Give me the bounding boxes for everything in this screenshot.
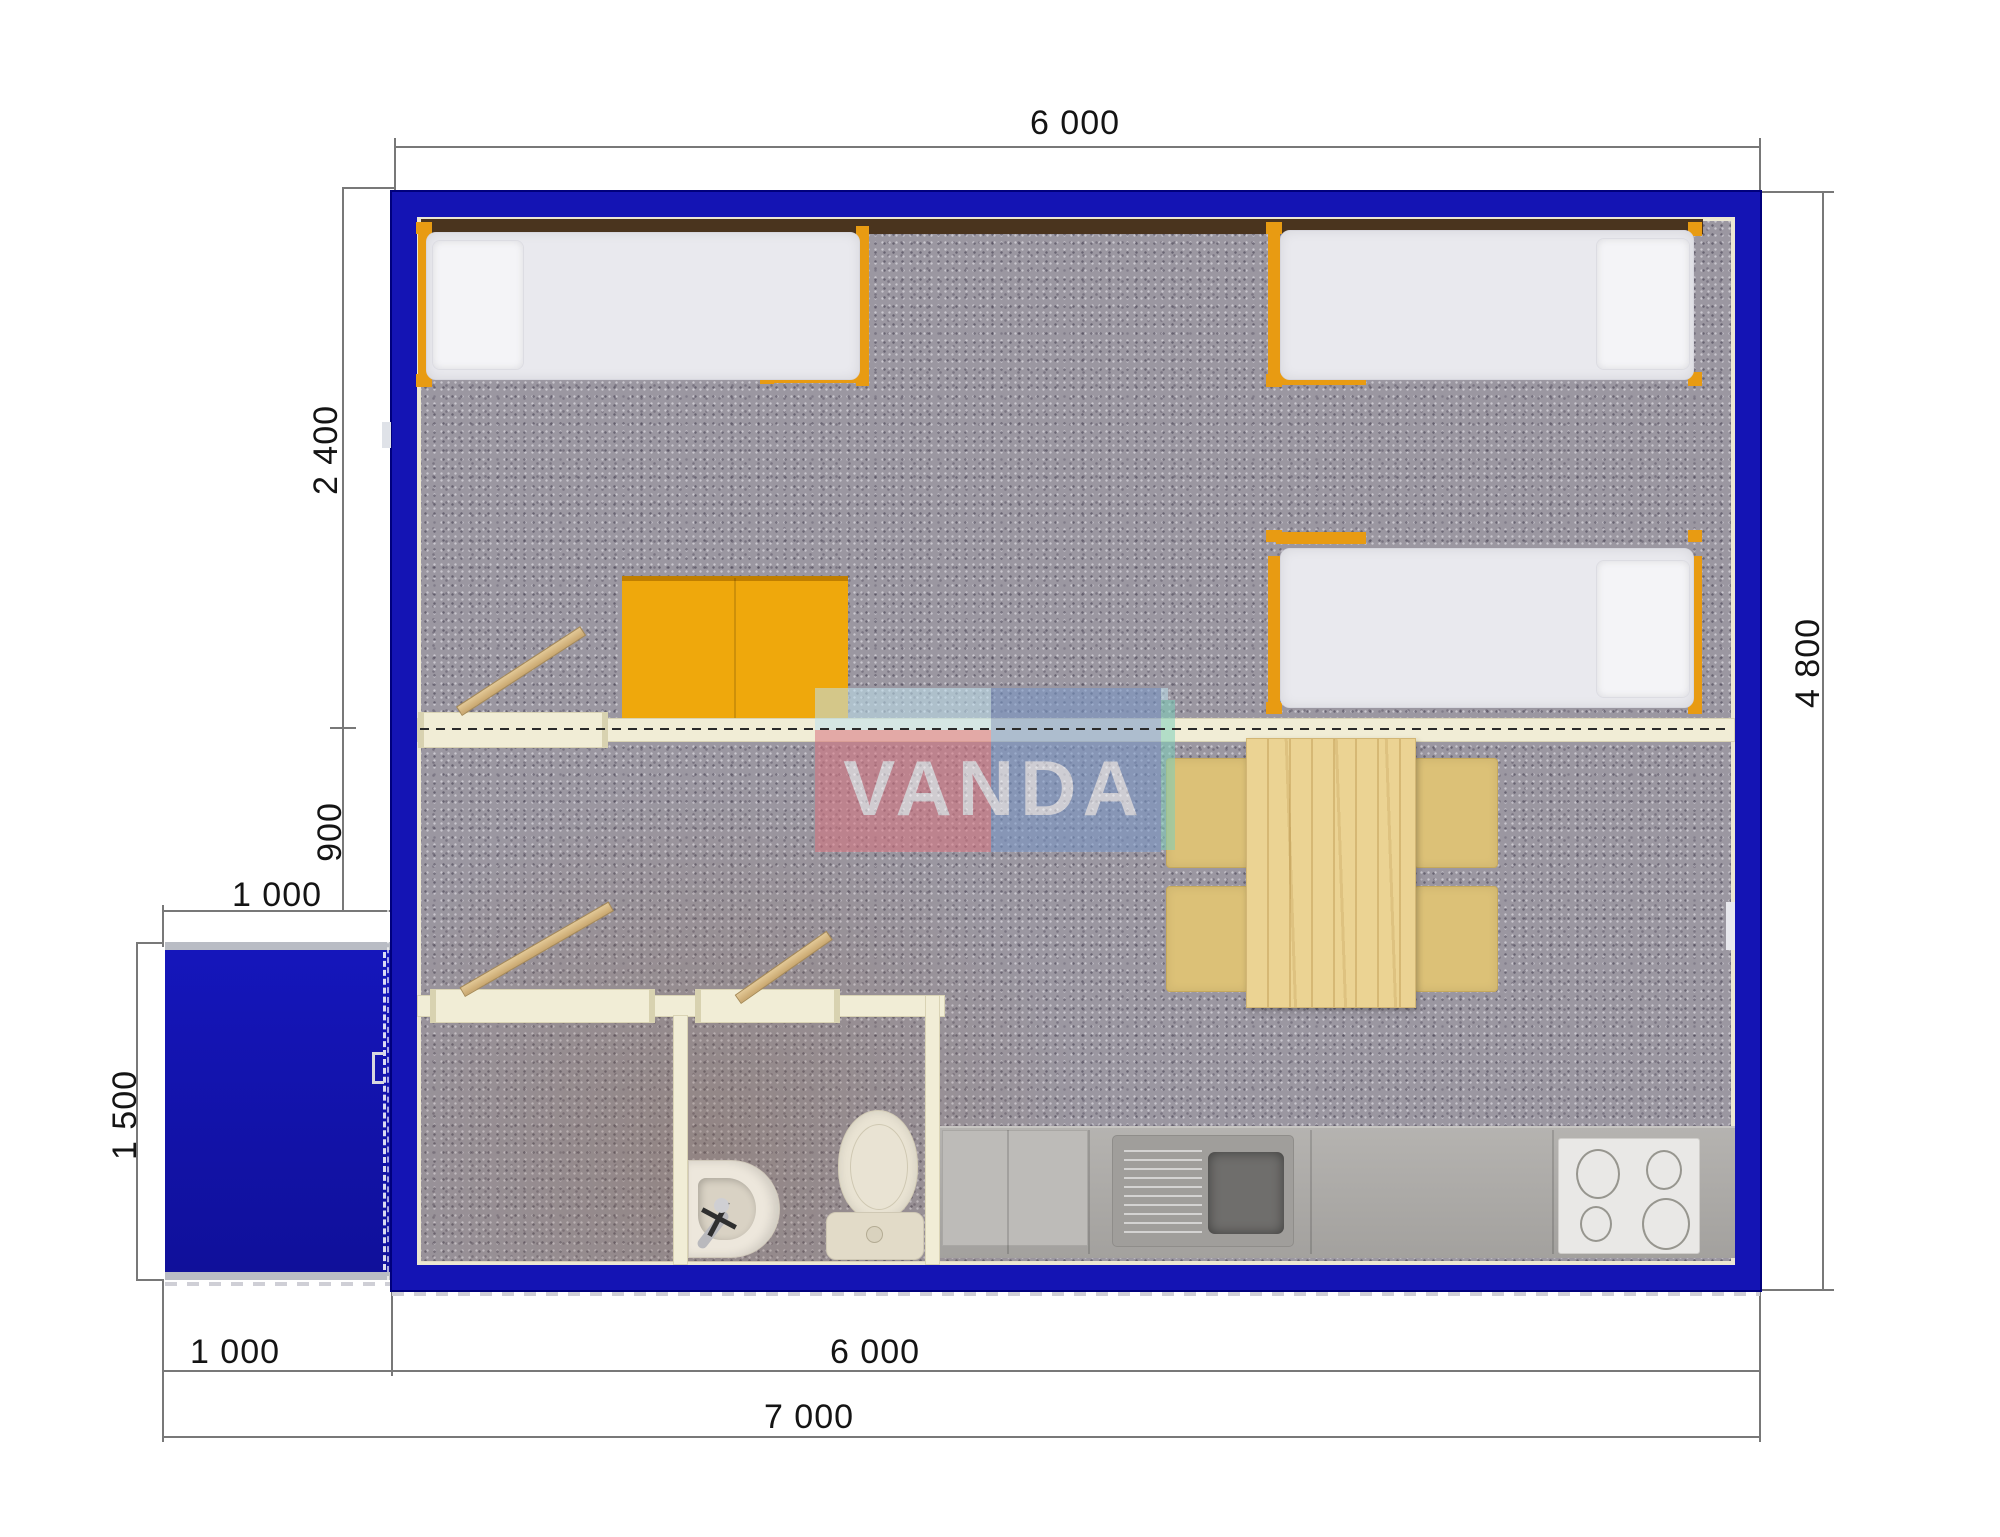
- porch-bottom-step: [165, 1272, 390, 1280]
- sink-basin: [1208, 1152, 1284, 1234]
- dim-witness: [394, 138, 396, 192]
- bed-frame-corner: [1688, 530, 1702, 542]
- counter-seam: [1007, 1130, 1009, 1254]
- dim-witness: [1760, 1289, 1834, 1291]
- partition-dashed-centerline: [420, 728, 1732, 730]
- chair: [1414, 758, 1498, 868]
- burner-icon: [1642, 1198, 1690, 1250]
- wc-right-wall: [925, 995, 940, 1265]
- burner-icon: [1576, 1149, 1620, 1199]
- dim-witness: [1760, 191, 1834, 193]
- dim-line: [395, 146, 1760, 148]
- dim-witness: [342, 187, 394, 189]
- dim-witness: [136, 942, 164, 944]
- dim-witness: [391, 1290, 393, 1376]
- porch-top-step: [165, 942, 390, 950]
- toilet-lid-inner-line: [850, 1124, 908, 1210]
- right-wall-window: [1726, 902, 1735, 950]
- logo-text: VANDA: [820, 742, 1168, 834]
- bed-frame-corner: [1266, 702, 1282, 714]
- casing-cap: [649, 989, 655, 1023]
- dim-witness: [136, 1279, 164, 1281]
- pillow: [432, 240, 524, 370]
- partition-door-casing: [418, 712, 608, 748]
- counter-seam: [1552, 1130, 1554, 1254]
- dim-label-porch-depth: 1 500: [105, 1015, 145, 1215]
- chair: [1166, 758, 1250, 868]
- bed-frame-rail: [1268, 556, 1280, 706]
- entrance-door-dashed-line: [383, 952, 386, 1270]
- dim-label-right-height: 4 800: [1788, 563, 1828, 763]
- wc-door-casing: [695, 989, 840, 1023]
- dim-witness: [1759, 1290, 1761, 1442]
- dining-table: [1246, 738, 1416, 1008]
- building-shadow-dashes: [392, 1292, 1760, 1296]
- counter-seam: [1310, 1130, 1312, 1254]
- dim-label-porch-width-top: 1 000: [177, 875, 377, 915]
- dim-label-total-width: 7 000: [709, 1397, 909, 1437]
- pillow: [1596, 560, 1690, 698]
- bed-frame-rail: [1276, 532, 1366, 544]
- dim-line: [163, 1436, 1760, 1438]
- dim-label-porch-width-bottom: 1 000: [135, 1332, 335, 1372]
- counter-left-panel: [942, 1130, 1088, 1246]
- burner-icon: [1580, 1206, 1612, 1242]
- casing-cap: [602, 712, 608, 748]
- dim-label-bedroom-depth: 2 400: [306, 350, 346, 550]
- dim-witness: [162, 905, 164, 947]
- porch-deck: [165, 950, 390, 1272]
- bed-frame-rail: [1268, 226, 1280, 384]
- vanda-watermark: VANDA: [812, 686, 1172, 854]
- porch-shadow-dashes: [165, 1282, 390, 1286]
- wardrobe-seam: [734, 578, 736, 718]
- left-wall-dashed-edge: [387, 200, 389, 1282]
- burner-icon: [1646, 1150, 1682, 1190]
- flush-button: [866, 1226, 883, 1243]
- counter-seam: [1088, 1130, 1090, 1254]
- faucet-knob: [714, 1198, 729, 1213]
- casing-cap: [834, 989, 840, 1023]
- casing-cap: [418, 712, 424, 748]
- chair: [1414, 886, 1498, 992]
- sink-drainboard: [1124, 1150, 1202, 1234]
- left-wall-window: [382, 422, 391, 448]
- entrance-door-handle: [372, 1052, 384, 1084]
- dim-label-top-width: 6 000: [975, 103, 1175, 143]
- casing-cap: [695, 989, 701, 1023]
- pillow: [1596, 238, 1690, 370]
- dim-label-main-width-bottom: 6 000: [775, 1332, 975, 1372]
- casing-cap: [430, 989, 436, 1023]
- chair: [1166, 886, 1250, 992]
- dim-witness: [1759, 138, 1761, 192]
- shower-wc-divider-wall: [673, 1015, 688, 1265]
- dim-line: [392, 1370, 1760, 1372]
